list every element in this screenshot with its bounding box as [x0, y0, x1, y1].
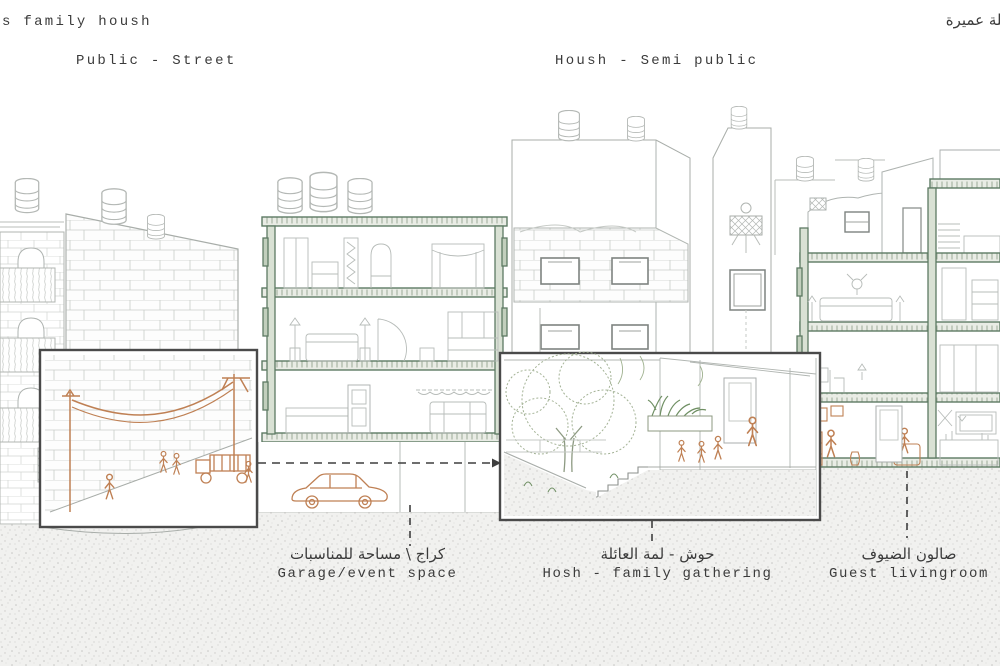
- water-tank: [15, 178, 38, 212]
- water-tank: [310, 172, 337, 211]
- water-tank: [148, 214, 165, 239]
- title-family-arabic: نلة عميرة: [946, 11, 1000, 29]
- caption-guest-english: Guest livingroom: [802, 564, 1000, 584]
- zone-label-public-street: Public - Street: [76, 53, 237, 69]
- water-tank: [559, 110, 580, 140]
- garage-interior: [258, 442, 506, 512]
- caption-hosh-english: Hosh - family gathering: [515, 564, 800, 584]
- zone-label-housh-semi-public: Housh - Semi public: [555, 53, 758, 69]
- water-tank: [731, 106, 747, 129]
- caption-hosh-arabic: حوش - لمة العائلة: [515, 544, 800, 564]
- caption-guest-arabic: صالون الضيوف: [802, 544, 1000, 564]
- caption-guest: صالون الضيوف Guest livingroom: [802, 544, 1000, 584]
- water-tank: [348, 178, 372, 213]
- water-tank: [797, 156, 814, 181]
- right-section-building: [797, 150, 1000, 467]
- caption-garage-arabic: كراج \ مساحة للمناسبات: [235, 544, 500, 564]
- architectural-section-drawing: s family housh نلة عميرة Public - Street…: [0, 0, 1000, 666]
- caption-hosh: حوش - لمة العائلة Hosh - family gatherin…: [515, 544, 800, 584]
- water-tank: [278, 178, 302, 213]
- caption-garage-english: Garage/event space: [235, 564, 500, 584]
- left-section-building: [258, 172, 507, 512]
- water-tank: [102, 189, 126, 224]
- garage-event-space-frame: [40, 350, 257, 527]
- caption-garage: كراج \ مساحة للمناسبات Garage/event spac…: [235, 544, 500, 584]
- water-tank: [858, 158, 874, 181]
- hosh-courtyard-frame: [500, 352, 820, 520]
- title-family-housh: s family housh: [2, 14, 152, 30]
- water-tank: [628, 116, 645, 141]
